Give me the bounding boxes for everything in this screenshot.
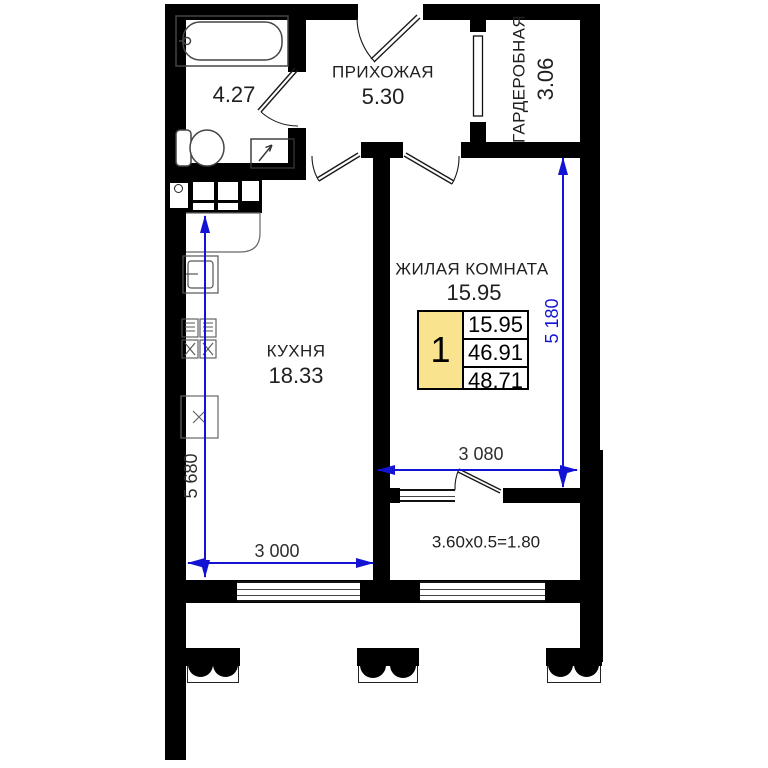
stove-icon [182, 319, 216, 358]
total-area-cell: 48.71 [464, 368, 527, 394]
area-cell: 46.91 [464, 340, 527, 368]
room-area-living: 15.95 [446, 282, 501, 304]
living-room-door [404, 153, 459, 184]
kitchen-counter [186, 213, 260, 252]
dimension-label-living-depth: 5 180 [543, 298, 561, 343]
balcony-door [455, 469, 501, 493]
plan-drawing [0, 0, 768, 768]
kitchen-sink-icon [183, 256, 218, 293]
dimension-label-kitchen-width: 3 000 [254, 542, 299, 560]
dimension-label-kitchen-depth: 5 680 [182, 453, 200, 498]
room-label-hallway: ПРИХОЖАЯ [332, 64, 434, 81]
apartment-info-table: 1 15.95 46.91 48.71 [417, 310, 529, 390]
kitchen-cabinet-icon [181, 396, 218, 438]
room-label-living: ЖИЛАЯ КОМНАТА [395, 261, 548, 278]
area-cells: 15.95 46.91 48.71 [464, 312, 527, 388]
bathroom-door [258, 68, 298, 126]
room-area-wardrobe: 3.06 [535, 58, 557, 101]
bathtub-icon [176, 16, 288, 66]
room-area-hallway: 5.30 [362, 86, 405, 108]
room-label-wardrobe: ГАРДЕРОБНАЯ [511, 15, 528, 143]
room-label-kitchen: КУХНЯ [267, 343, 326, 360]
entrance-door [357, 15, 420, 62]
rooms-count-cell: 1 [419, 312, 464, 388]
toilet-icon [176, 130, 224, 166]
living-area-cell: 15.95 [464, 312, 527, 340]
dimension-label-living-width: 3 080 [458, 445, 503, 463]
dimension-line-living-width [377, 465, 578, 475]
electrical-panel-icon [251, 139, 294, 168]
kitchen-door [312, 153, 360, 181]
loggia-area-formula: 3.60x0.5=1.80 [432, 534, 540, 551]
floor-plan: ПРИХОЖАЯ 5.30 4.27 ГАРДЕРОБНАЯ 3.06 КУХН… [0, 0, 768, 768]
wardrobe-door-leaf [470, 32, 486, 122]
room-area-kitchen: 18.33 [268, 365, 323, 387]
room-area-bathroom: 4.27 [213, 84, 256, 106]
